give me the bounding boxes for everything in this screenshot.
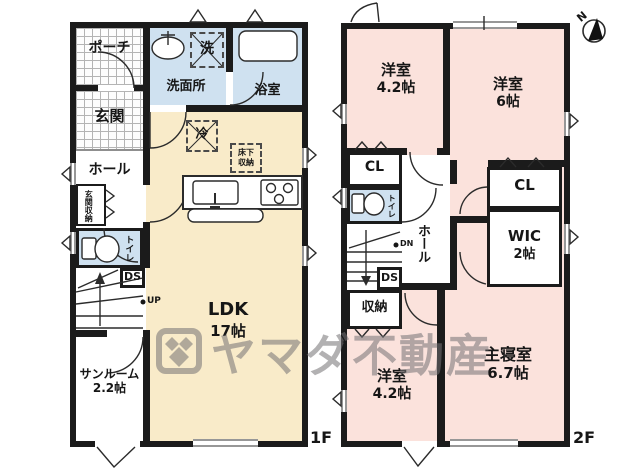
window-triangle bbox=[62, 167, 70, 181]
room-ne-label: 洋室6帖 bbox=[452, 76, 564, 111]
porch-label: ポーチ bbox=[76, 40, 143, 56]
window bbox=[453, 21, 517, 29]
window-triangle bbox=[333, 392, 341, 406]
entrance-storage-label: 玄関収納 bbox=[84, 188, 93, 224]
floor2-label: 2F bbox=[573, 429, 595, 447]
sunroom-label: サンルーム2.2帖 bbox=[76, 368, 143, 396]
underfloor-storage-label: 床下収納 bbox=[230, 148, 262, 168]
vent-triangle bbox=[247, 10, 263, 22]
wall bbox=[143, 330, 150, 441]
closet-west-label: CL bbox=[347, 159, 402, 175]
wall bbox=[450, 160, 457, 184]
window bbox=[193, 439, 258, 447]
bathroom-label: 浴室 bbox=[233, 84, 302, 99]
window bbox=[302, 148, 308, 168]
washroom-label: 洗面所 bbox=[146, 80, 226, 95]
compass-circle bbox=[583, 20, 605, 42]
wall bbox=[402, 283, 450, 290]
watermark-brand-text: ヤマダ不動産 bbox=[211, 319, 493, 384]
door-gap bbox=[95, 441, 140, 447]
window-triangle bbox=[62, 236, 70, 250]
window bbox=[341, 104, 347, 124]
washer-label: 洗 bbox=[190, 41, 224, 57]
wall bbox=[143, 28, 150, 112]
hall2f-label: ホール bbox=[414, 212, 429, 274]
window-triangle bbox=[308, 148, 316, 162]
window-triangle bbox=[570, 230, 578, 244]
window-triangle bbox=[333, 104, 341, 118]
wall bbox=[76, 330, 107, 337]
closet-east-label: CL bbox=[487, 177, 562, 194]
wall bbox=[443, 29, 450, 155]
toilet2f-label: トイレ bbox=[387, 189, 396, 223]
corner-window-arc bbox=[351, 3, 379, 22]
compass-north-label: N bbox=[575, 10, 590, 26]
window bbox=[564, 112, 570, 136]
porch-floor bbox=[76, 28, 143, 85]
up-label: UP bbox=[147, 296, 161, 306]
room-sw-exterior-door bbox=[404, 447, 434, 466]
watermark-logo-icon bbox=[155, 327, 203, 375]
wall bbox=[76, 85, 98, 91]
entrance-label: 玄関 bbox=[76, 108, 143, 125]
hall1f-label: ホール bbox=[76, 162, 143, 178]
ds1f-label: DS bbox=[120, 271, 145, 284]
fridge-label: 冷 bbox=[186, 128, 218, 143]
wall bbox=[146, 105, 148, 112]
wic-label: WIC2帖 bbox=[487, 228, 562, 263]
dn-label: DN bbox=[400, 239, 413, 248]
wall bbox=[450, 216, 457, 290]
window bbox=[302, 246, 308, 266]
wall bbox=[488, 160, 564, 167]
door-gap bbox=[402, 441, 437, 447]
window bbox=[70, 232, 76, 254]
ds2f-label: DS bbox=[377, 272, 402, 285]
floorplan-canvas: ポーチ 玄関 ホール 玄関収納 トイレ DS UP サンルーム2.2帖 洗面所 … bbox=[0, 0, 640, 469]
floor1-label: 1F bbox=[310, 429, 332, 447]
wall bbox=[437, 148, 450, 155]
compass-needle bbox=[588, 18, 603, 41]
window-triangle bbox=[570, 114, 578, 128]
storage2f-label: 収納 bbox=[347, 301, 402, 316]
watermark: ヤマダ不動産 bbox=[155, 323, 493, 379]
vent-triangle bbox=[190, 10, 206, 22]
wall bbox=[457, 216, 487, 223]
wall bbox=[143, 112, 150, 185]
window-triangle bbox=[333, 190, 341, 204]
toilet1f-label: トイレ bbox=[123, 231, 133, 265]
window bbox=[341, 188, 347, 208]
window bbox=[564, 224, 570, 254]
window-triangle bbox=[308, 246, 316, 260]
wall bbox=[347, 148, 407, 155]
room-nw-label: 洋室4.2帖 bbox=[349, 62, 443, 97]
window bbox=[450, 439, 518, 447]
ldk-floor bbox=[146, 112, 302, 441]
wall bbox=[143, 222, 150, 268]
sunroom-exterior-door bbox=[97, 447, 135, 467]
wall bbox=[134, 85, 143, 91]
wall bbox=[186, 105, 302, 112]
entrance-step-line bbox=[76, 149, 143, 151]
wall bbox=[226, 28, 233, 72]
